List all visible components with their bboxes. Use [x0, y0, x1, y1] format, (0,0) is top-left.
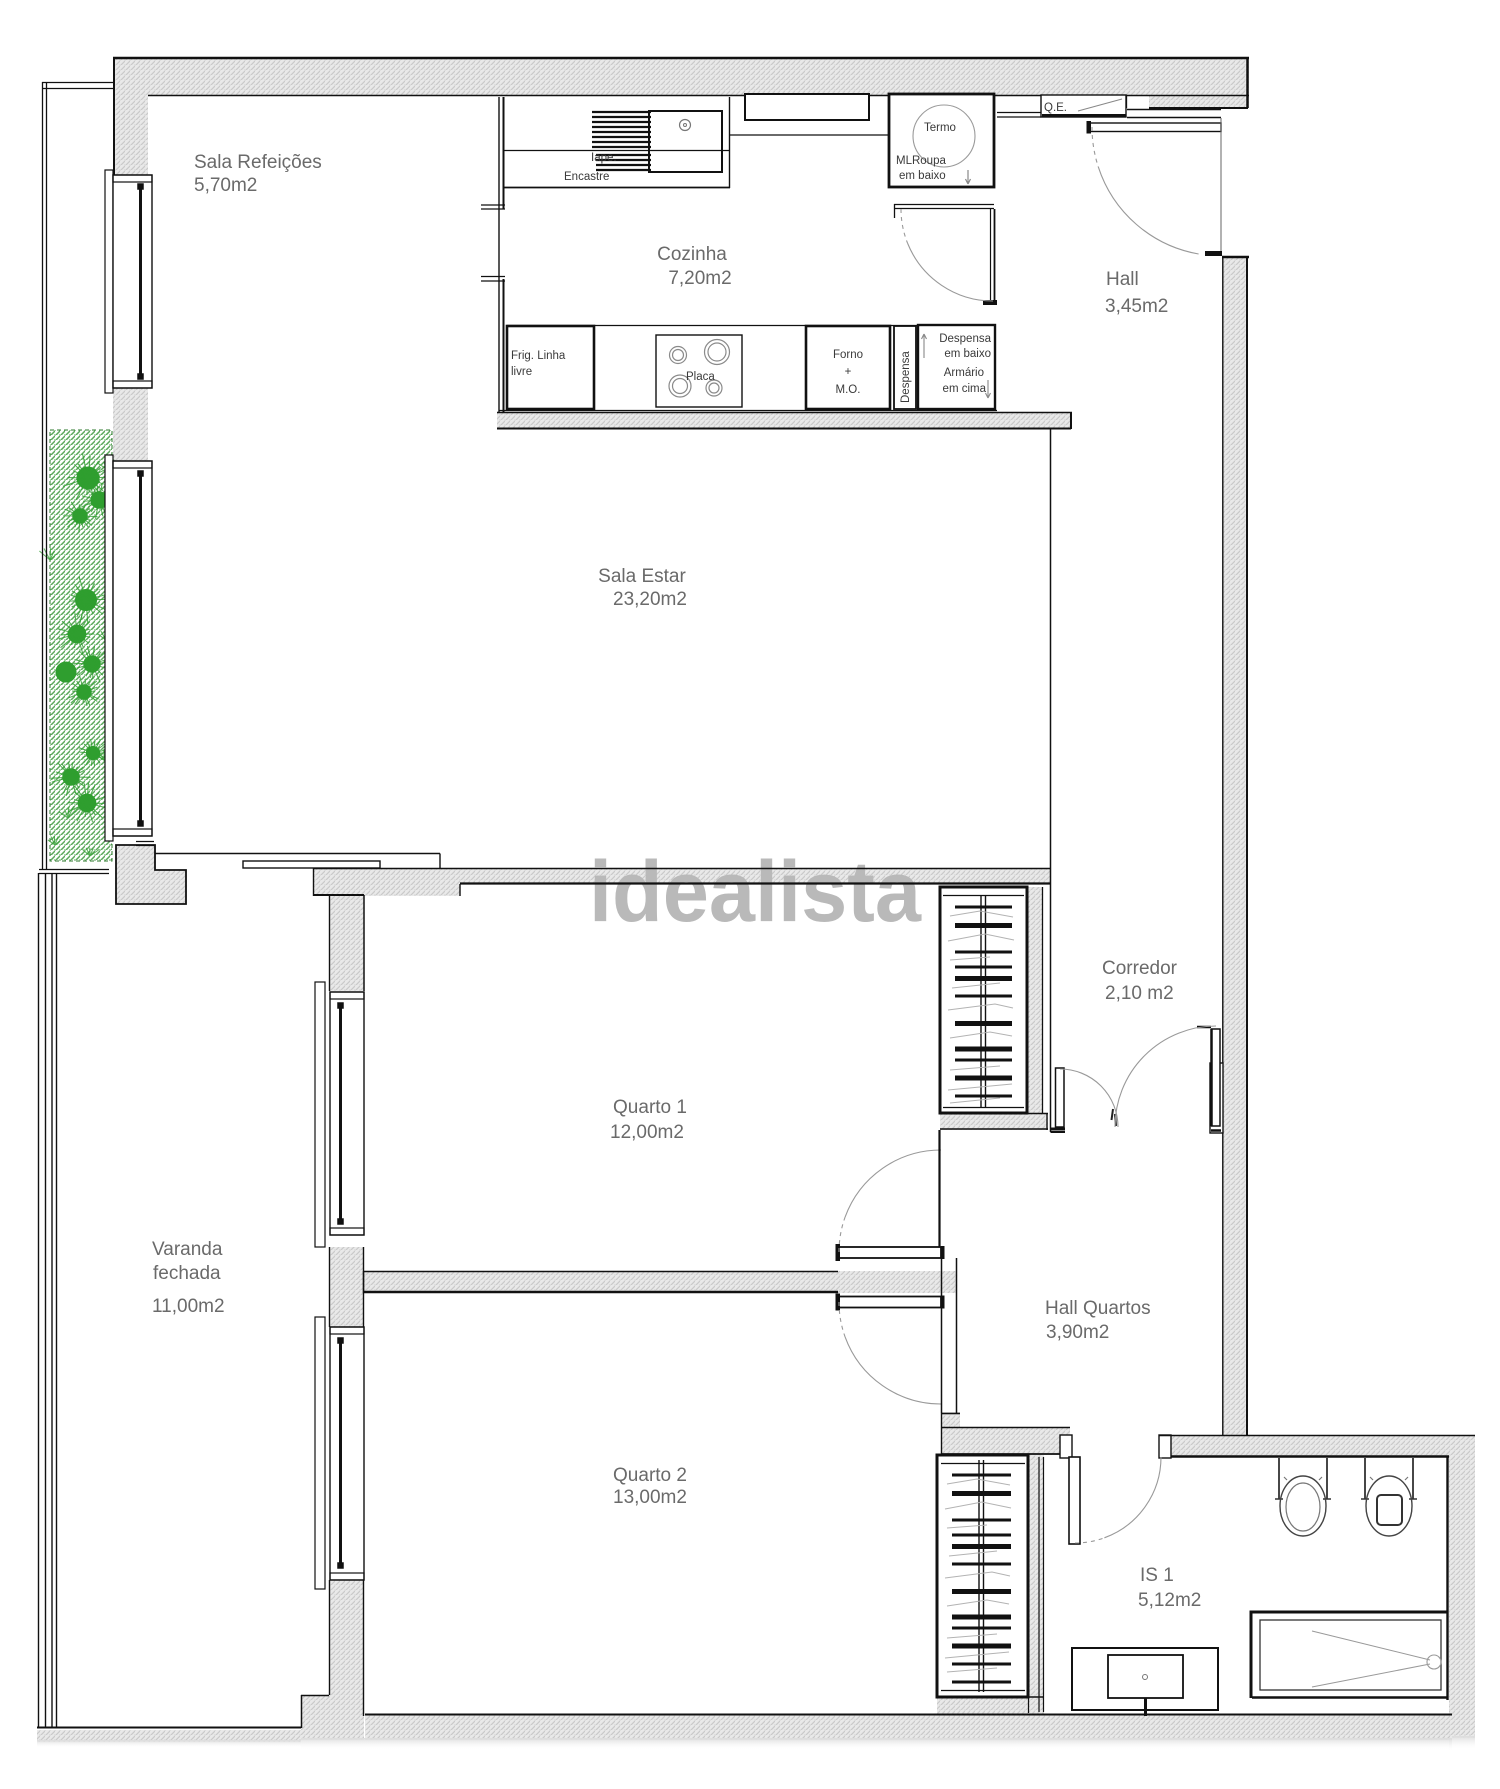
svg-text:MLRoupa: MLRoupa [896, 155, 946, 167]
svg-text:livre: livre [511, 366, 532, 378]
svg-text:Despensa: Despensa [939, 333, 991, 345]
svg-text:em cima: em cima [943, 383, 987, 395]
svg-text:Hall: Hall [1106, 269, 1139, 290]
svg-text:Armário: Armário [944, 367, 984, 379]
svg-text:em baixo: em baixo [899, 170, 946, 182]
svg-text:7,20m2: 7,20m2 [668, 268, 731, 289]
svg-text:em baixo: em baixo [944, 348, 991, 360]
svg-text:Quarto 2: Quarto 2 [613, 1465, 687, 1486]
svg-text:fechada: fechada [153, 1263, 221, 1284]
svg-text:2,10 m2: 2,10 m2 [1105, 983, 1174, 1004]
svg-text:5,70m2: 5,70m2 [194, 175, 257, 196]
svg-text:Frig. Linha: Frig. Linha [511, 350, 566, 362]
svg-text:IS 1: IS 1 [1140, 1565, 1174, 1586]
svg-text:3,90m2: 3,90m2 [1046, 1322, 1109, 1343]
svg-text:11,00m2: 11,00m2 [152, 1296, 225, 1317]
svg-text:Iape.: Iape. [591, 152, 617, 164]
svg-text:13,00m2: 13,00m2 [613, 1487, 687, 1508]
svg-text:Hall Quartos: Hall Quartos [1045, 1298, 1151, 1319]
svg-text:3,45m2: 3,45m2 [1105, 296, 1168, 317]
svg-text:Corredor: Corredor [1102, 958, 1178, 979]
svg-text:Q.E.: Q.E. [1044, 102, 1067, 114]
svg-text:idealista: idealista [589, 844, 922, 940]
svg-text:Encastre: Encastre [564, 171, 609, 183]
svg-text:12,00m2: 12,00m2 [610, 1122, 684, 1143]
svg-text:Placa: Placa [686, 371, 715, 383]
svg-text:Sala Estar: Sala Estar [598, 566, 686, 587]
svg-text:23,20m2: 23,20m2 [613, 589, 687, 610]
svg-text:Quarto 1: Quarto 1 [613, 1097, 687, 1118]
svg-text:5,12m2: 5,12m2 [1138, 1590, 1201, 1611]
svg-text:M.O.: M.O. [836, 384, 861, 396]
svg-text:+: + [845, 366, 852, 378]
svg-text:Varanda: Varanda [152, 1239, 223, 1260]
svg-text:Cozinha: Cozinha [657, 244, 727, 265]
svg-text:Termo: Termo [924, 122, 956, 134]
svg-text:Despensa: Despensa [900, 351, 912, 403]
svg-text:Sala Refeições: Sala Refeições [194, 152, 322, 173]
svg-text:Forno: Forno [833, 349, 863, 361]
